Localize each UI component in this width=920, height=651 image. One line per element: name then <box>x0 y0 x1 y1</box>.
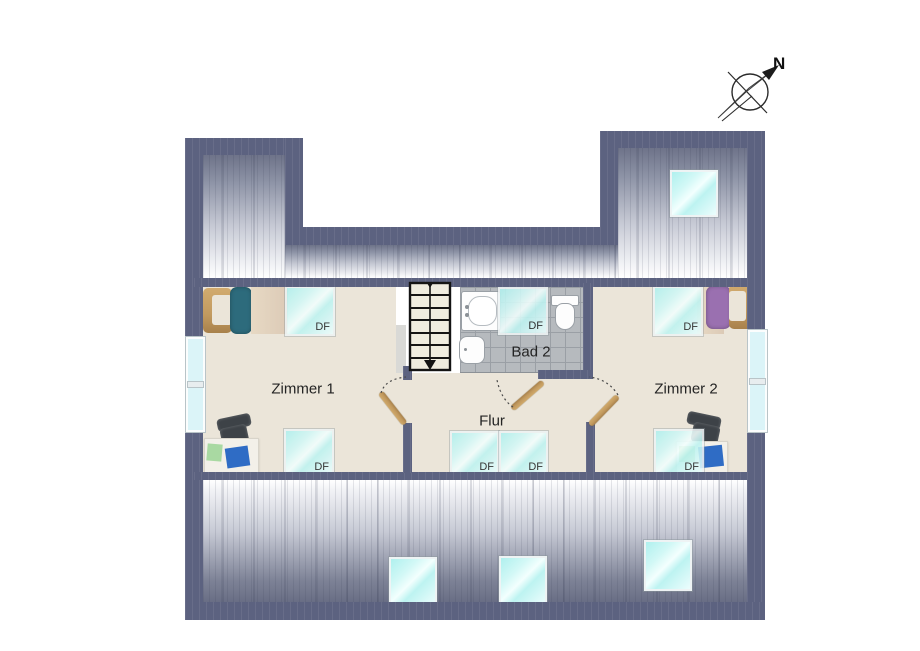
compass-north-label: N <box>773 54 785 74</box>
door-arc-zimmer2 <box>589 377 618 395</box>
door-arc-zimmer1 <box>381 377 406 393</box>
room-label-zimmer2: Zimmer 2 <box>654 381 717 398</box>
door-arc-bad2 <box>497 380 513 407</box>
compass-rose-icon <box>705 48 805 128</box>
room-label-bad2: Bad 2 <box>511 344 550 361</box>
room-label-flur: Flur <box>479 413 505 430</box>
floor-plan: DF DF DF DF DF DF DF <box>0 0 920 651</box>
room-label-zimmer1: Zimmer 1 <box>271 381 334 398</box>
